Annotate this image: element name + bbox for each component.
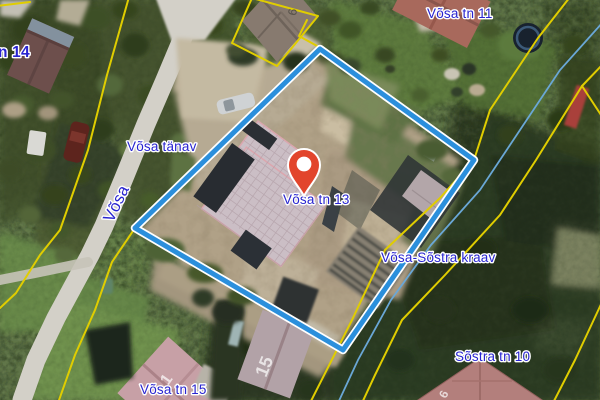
svg-text:Võsa-Sõstra kraav: Võsa-Sõstra kraav	[381, 250, 495, 265]
svg-text:Sõstra tn 10: Sõstra tn 10	[455, 349, 530, 364]
svg-text:Võsa tn 13: Võsa tn 13	[283, 192, 350, 207]
svg-text:Võsa tn 11: Võsa tn 11	[427, 6, 493, 21]
svg-text:Võsa tänav: Võsa tänav	[127, 139, 197, 154]
svg-text:n 14: n 14	[0, 44, 30, 61]
